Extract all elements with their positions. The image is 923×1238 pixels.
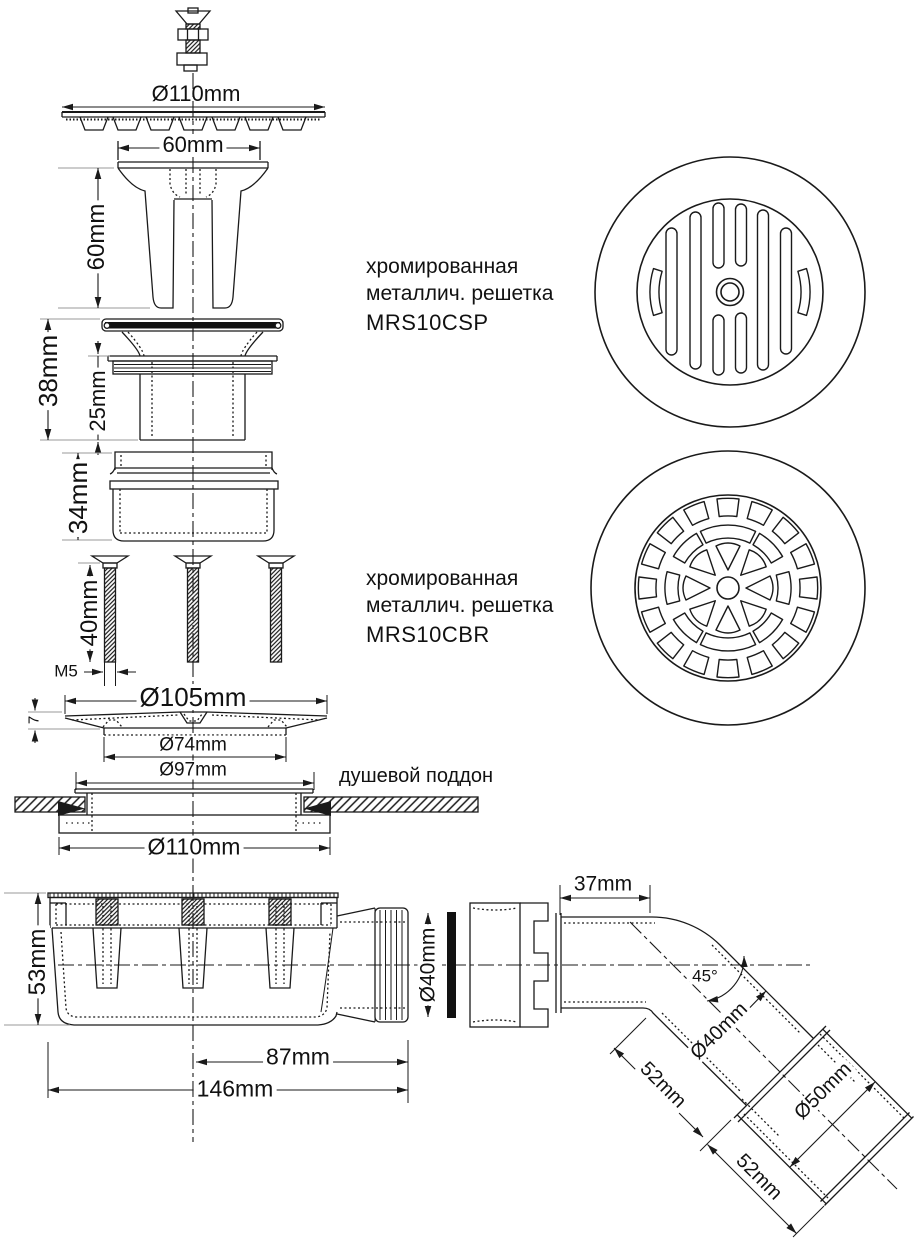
product-cbr-description-line1: хромированная [366, 568, 518, 589]
dim-plate-inner-diameter: Ø74mm [156, 736, 230, 755]
grate-radial-view [591, 451, 865, 725]
dim-plate-neck-diameter: Ø97mm [156, 761, 230, 780]
screws [78, 556, 294, 686]
drawing-linework [0, 0, 923, 1238]
dim-plate-diameter: Ø105mm [137, 684, 250, 710]
drain-body [4, 893, 548, 1103]
dim-plate-thickness: 7 [27, 713, 42, 727]
shower-tray-label: душевой поддон [339, 766, 493, 786]
product-csp-description-line2: металлич. решетка [366, 283, 553, 304]
dim-elbow-angle: 45° [689, 968, 721, 985]
tray-section [15, 789, 478, 855]
product-csp-code: MRS10CSP [366, 312, 489, 334]
ring-part [62, 452, 278, 541]
grate-slotted-view [595, 157, 865, 427]
dim-body-height: 53mm [26, 926, 50, 999]
dim-flange-tube-height: 25mm [87, 367, 109, 434]
dim-screw-length: 40mm [78, 577, 102, 650]
dim-elbow-inlet-length: 37mm [574, 874, 632, 895]
dim-outlet-offset: 87mm [263, 1046, 333, 1069]
product-cbr-code: MRS10CBR [366, 624, 490, 646]
dim-funnel-height: 60mm [85, 201, 109, 274]
dim-outlet-diameter: Ø40mm [418, 925, 439, 1006]
flange-part [40, 319, 283, 455]
dim-grate-diameter-top: Ø110mm [152, 83, 241, 105]
technical-drawing: Ø110mm 60mm 60mm 38mm 25mm 34mm 40mm M5 … [0, 0, 923, 1238]
dim-funnel-width: 60mm [159, 134, 226, 156]
dim-screw-thread: M5 [54, 663, 78, 680]
product-cbr-description-line2: металлич. решетка [366, 595, 553, 616]
dim-flange-height: 38mm [35, 332, 61, 410]
dim-ring-height: 34mm [65, 459, 91, 537]
dim-body-length: 146mm [194, 1078, 277, 1101]
product-csp-description-line1: хромированная [366, 256, 518, 277]
dim-bottom-flange-diameter: Ø110mm [145, 836, 244, 859]
screw-assembly [176, 8, 210, 71]
